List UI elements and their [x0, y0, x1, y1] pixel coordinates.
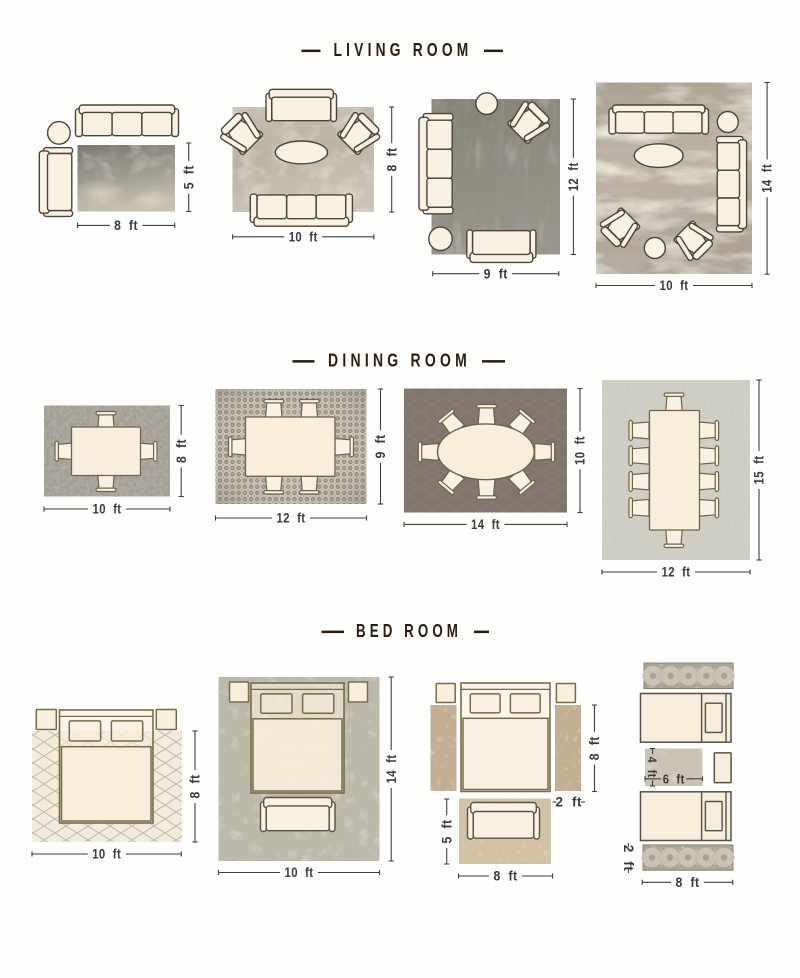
svg-text:6 ft: 6 ft	[663, 772, 685, 786]
svg-text:12 ft: 12 ft	[277, 511, 306, 526]
svg-text:5 ft: 5 ft	[181, 165, 196, 189]
svg-text:14 ft: 14 ft	[384, 755, 399, 784]
svg-text:10 ft: 10 ft	[285, 865, 314, 880]
svg-text:BED ROOM: BED ROOM	[356, 621, 462, 641]
svg-text:5 ft: 5 ft	[439, 820, 454, 844]
svg-text:10 ft: 10 ft	[289, 229, 318, 244]
svg-text:DINING ROOM: DINING ROOM	[328, 351, 471, 371]
svg-text:8 ft: 8 ft	[174, 439, 189, 463]
svg-text:9 ft: 9 ft	[484, 266, 508, 281]
svg-text:14 ft: 14 ft	[760, 164, 775, 193]
svg-text:9 ft: 9 ft	[373, 435, 388, 459]
svg-text:2 ft: 2 ft	[556, 795, 583, 810]
svg-text:2 ft: 2 ft	[621, 845, 636, 872]
svg-text:10 ft: 10 ft	[573, 436, 588, 465]
svg-text:10 ft: 10 ft	[93, 502, 122, 517]
svg-text:10 ft: 10 ft	[660, 278, 689, 293]
svg-text:4 ft: 4 ft	[645, 757, 659, 778]
svg-text:14 ft: 14 ft	[471, 517, 500, 532]
svg-text:LIVING ROOM: LIVING ROOM	[334, 40, 473, 60]
svg-text:12 ft: 12 ft	[566, 162, 581, 191]
svg-text:8 ft: 8 ft	[676, 875, 700, 890]
svg-text:8 ft: 8 ft	[188, 775, 203, 799]
svg-text:8 ft: 8 ft	[384, 148, 399, 172]
svg-text:8 ft: 8 ft	[587, 736, 602, 760]
svg-text:15 ft: 15 ft	[752, 456, 767, 485]
svg-text:8 ft: 8 ft	[494, 869, 518, 884]
svg-text:12 ft: 12 ft	[662, 565, 691, 580]
svg-text:10 ft: 10 ft	[92, 847, 121, 862]
svg-text:8 ft: 8 ft	[114, 218, 138, 233]
